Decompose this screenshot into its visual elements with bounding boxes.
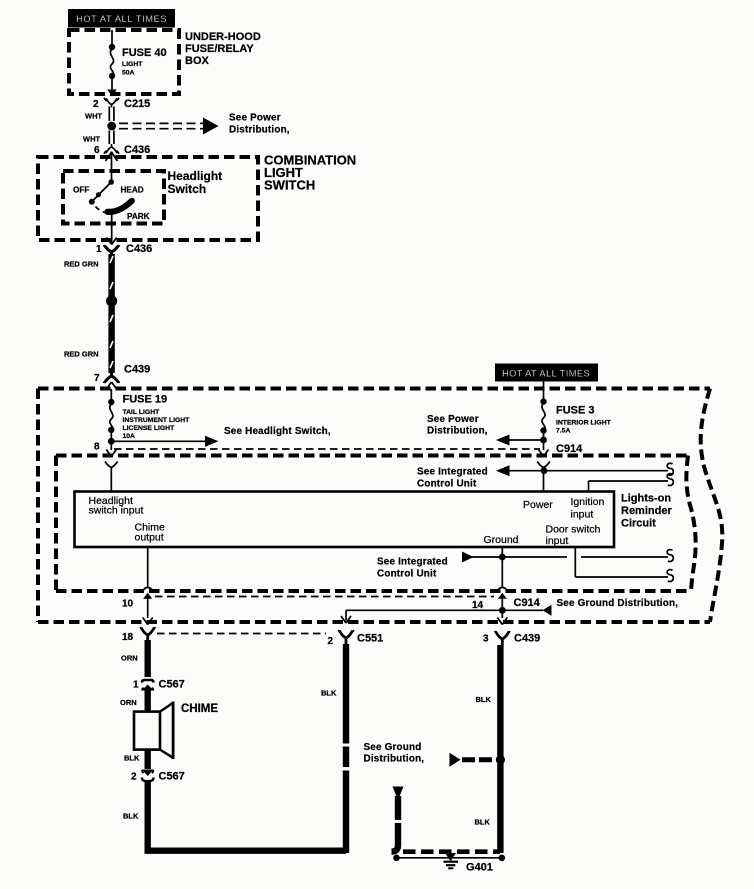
svg-text:50A: 50A — [122, 70, 135, 77]
svg-text:INSTRUMENT LIGHT: INSTRUMENT LIGHT — [123, 417, 191, 424]
svg-text:input: input — [546, 535, 569, 547]
svg-text:See Power: See Power — [427, 414, 479, 425]
svg-text:RED GRN: RED GRN — [64, 260, 99, 269]
svg-text:Ignition: Ignition — [571, 496, 605, 508]
svg-text:C439: C439 — [124, 364, 150, 376]
svg-text:18: 18 — [122, 632, 134, 643]
svg-text:See Ground Distribution,: See Ground Distribution, — [557, 598, 679, 609]
svg-text:OFF: OFF — [73, 186, 89, 195]
svg-text:WHT: WHT — [85, 112, 102, 121]
svg-text:input: input — [571, 509, 594, 521]
svg-text:See Power: See Power — [229, 113, 281, 124]
svg-text:7.5A: 7.5A — [556, 428, 570, 435]
svg-text:C914: C914 — [514, 597, 541, 609]
svg-text:C567: C567 — [159, 771, 185, 783]
svg-text:INTERIOR LIGHT: INTERIOR LIGHT — [556, 420, 612, 427]
svg-text:2: 2 — [93, 99, 99, 110]
svg-text:CHIME: CHIME — [181, 703, 218, 715]
svg-text:PARK: PARK — [127, 212, 150, 221]
svg-text:HOT AT ALL TIMES: HOT AT ALL TIMES — [502, 369, 590, 379]
svg-text:UNDER-HOOD: UNDER-HOOD — [185, 31, 261, 43]
svg-text:TAIL LIGHT: TAIL LIGHT — [123, 409, 161, 416]
svg-text:C914: C914 — [556, 443, 583, 455]
svg-text:Ground: Ground — [484, 534, 519, 546]
svg-text:Lights-on: Lights-on — [621, 493, 671, 505]
svg-text:2: 2 — [328, 636, 334, 647]
svg-text:6: 6 — [94, 145, 100, 156]
svg-text:7: 7 — [94, 373, 100, 384]
svg-text:BLK: BLK — [475, 818, 491, 827]
svg-text:LICENSE LIGHT: LICENSE LIGHT — [123, 425, 176, 432]
svg-text:Power: Power — [523, 499, 553, 511]
svg-text:BLK: BLK — [321, 689, 337, 698]
svg-text:See Headlight Switch,: See Headlight Switch, — [224, 426, 331, 437]
svg-text:Control Unit: Control Unit — [377, 569, 437, 580]
svg-text:1: 1 — [96, 244, 102, 255]
svg-text:Control Unit: Control Unit — [417, 479, 477, 490]
svg-text:FUSE/RELAY: FUSE/RELAY — [185, 43, 254, 55]
svg-text:Switch: Switch — [168, 182, 207, 196]
svg-text:Headlight: Headlight — [168, 169, 223, 183]
svg-text:ORN: ORN — [120, 698, 137, 707]
svg-text:1: 1 — [133, 680, 139, 691]
svg-text:10: 10 — [122, 599, 134, 610]
svg-text:HEAD: HEAD — [121, 186, 144, 195]
svg-text:FUSE 40: FUSE 40 — [122, 47, 167, 59]
svg-text:See Integrated: See Integrated — [417, 467, 488, 478]
svg-text:FUSE 19: FUSE 19 — [123, 394, 168, 406]
svg-text:Door switch: Door switch — [546, 524, 601, 536]
svg-text:BLK: BLK — [123, 812, 139, 821]
svg-text:C436: C436 — [126, 243, 152, 255]
svg-text:ORN: ORN — [121, 654, 138, 663]
svg-text:G401: G401 — [466, 862, 493, 874]
svg-text:10A: 10A — [123, 433, 136, 440]
svg-text:C567: C567 — [159, 679, 185, 691]
svg-text:LIGHT: LIGHT — [122, 61, 143, 68]
svg-text:Distribution,: Distribution, — [364, 754, 425, 765]
svg-text:BLK: BLK — [476, 695, 492, 704]
svg-text:BLK: BLK — [124, 754, 140, 763]
svg-text:switch input: switch input — [89, 505, 144, 517]
svg-text:Distribution,: Distribution, — [229, 125, 290, 136]
svg-text:2: 2 — [131, 772, 137, 783]
svg-text:14: 14 — [472, 600, 484, 611]
svg-text:C551: C551 — [357, 633, 383, 645]
svg-text:3: 3 — [483, 634, 489, 645]
svg-text:C436: C436 — [124, 144, 150, 156]
svg-text:RED GRN: RED GRN — [64, 350, 99, 359]
svg-text:HOT AT ALL TIMES: HOT AT ALL TIMES — [76, 14, 167, 24]
svg-text:Circuit: Circuit — [621, 518, 656, 530]
svg-text:8: 8 — [94, 442, 100, 453]
svg-text:FUSE 3: FUSE 3 — [556, 405, 595, 417]
svg-text:C439: C439 — [514, 633, 540, 645]
svg-text:C215: C215 — [124, 98, 150, 110]
svg-text:output: output — [135, 532, 164, 544]
svg-text:BOX: BOX — [185, 55, 210, 67]
svg-text:Reminder: Reminder — [621, 505, 672, 517]
svg-text:See Ground: See Ground — [364, 742, 422, 753]
svg-text:Distribution,: Distribution, — [427, 426, 488, 437]
svg-text:SWITCH: SWITCH — [264, 178, 315, 193]
svg-text:WHT: WHT — [83, 135, 100, 144]
svg-text:See Integrated: See Integrated — [377, 557, 448, 568]
